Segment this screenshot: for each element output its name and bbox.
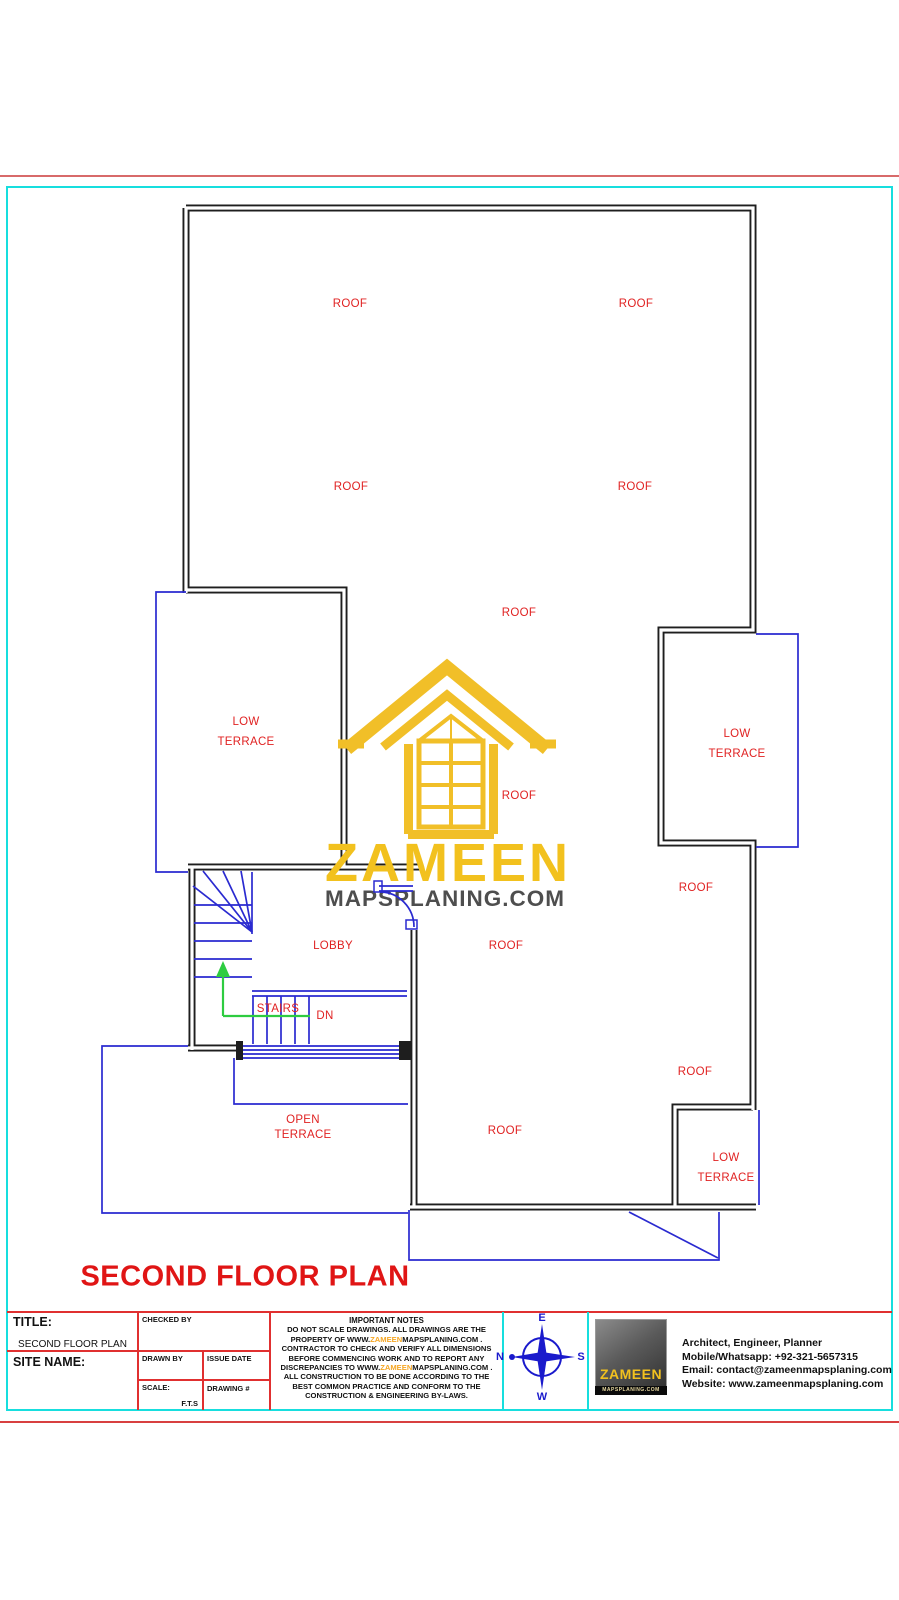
note-line: BEFORE COMMENCING WORK AND TO REPORT ANY (272, 1354, 501, 1363)
note-line: BEST COMMON PRACTICE AND CONFORM TO THE (272, 1382, 501, 1391)
roof-label-9: ROOF (678, 1065, 712, 1079)
issue-date-label: ISSUE DATE (207, 1354, 251, 1363)
site-name-label: SITE NAME: (13, 1355, 85, 1369)
contact-mobile: Mobile/Whatsapp: +92-321-5657315 (682, 1351, 892, 1365)
company-contact-info: Architect, Engineer, Planner Mobile/What… (682, 1337, 892, 1391)
scale-label: SCALE: (142, 1383, 170, 1392)
watermark-brand: ZAMEEN (325, 833, 571, 893)
important-notes: IMPORTANT NOTES DO NOT SCALE DRAWINGS. A… (272, 1316, 501, 1401)
roof-label-6: ROOF (502, 789, 536, 803)
drawing-number-label: DRAWING # (207, 1384, 250, 1393)
note-line: PROPERTY OF WWW.ZAMEENMAPSPLANING.COM . (272, 1335, 501, 1344)
note-line: CONTRACTOR TO CHECK AND VERIFY ALL DIMEN… (272, 1344, 501, 1353)
roof-label-7: ROOF (679, 881, 713, 895)
notes-body: DO NOT SCALE DRAWINGS. ALL DRAWINGS ARE … (272, 1325, 501, 1400)
title-label: TITLE: (13, 1315, 52, 1329)
contact-email: Email: contact@zameenmapsplaning.com (682, 1364, 892, 1378)
contact-website: Website: www.zameenmapsplaning.com (682, 1378, 892, 1392)
roof-label-10: ROOF (488, 1124, 522, 1138)
low-terrace-left-label: LOW TERRACE (217, 712, 274, 752)
note-line: ALL CONSTRUCTION TO BE DONE ACCORDING TO… (272, 1372, 501, 1381)
drawn-by-label: DRAWN BY (142, 1354, 183, 1363)
company-logo-brand: ZAMEEN (595, 1366, 667, 1382)
checked-by-label: CHECKED BY (142, 1315, 192, 1324)
roof-label-3: ROOF (334, 480, 368, 494)
title-value: SECOND FLOOR PLAN (7, 1339, 138, 1350)
compass-north-label: N (496, 1351, 504, 1363)
note-line: CONSTRUCTION & ENGINEERING BY-LAWS. (272, 1391, 501, 1400)
note-line: DISCREPANCIES TO WWW.ZAMEENMAPSPLANING.C… (272, 1363, 501, 1372)
roof-label-2: ROOF (619, 297, 653, 311)
low-terrace-right-label: LOW TERRACE (708, 724, 765, 764)
compass-east-label: E (538, 1312, 545, 1324)
contact-role: Architect, Engineer, Planner (682, 1337, 892, 1351)
watermark-house-icon (338, 667, 556, 839)
roof-label-8: ROOF (489, 939, 523, 953)
lobby-label: LOBBY (313, 939, 353, 953)
dn-label: DN (316, 1009, 333, 1023)
drawing-sheet: ZAMEEN MAPSPLANING.COM (0, 0, 899, 1600)
watermark-domain: MAPSPLANING.COM (325, 886, 565, 911)
company-logo-domain-strip: MAPSPLANING.COM (595, 1386, 667, 1395)
low-terrace-bottom-label: LOW TERRACE (697, 1148, 754, 1188)
stairs-label: STAIRS (257, 1002, 299, 1016)
compass-west-label: W (537, 1391, 547, 1403)
company-logo-domain: MAPSPLANING.COM (595, 1386, 667, 1395)
stair-strip-cap-right (399, 1041, 411, 1060)
stair-strip-cap-left (236, 1041, 243, 1060)
company-logo (595, 1319, 667, 1395)
open-terrace-label: OPEN TERRACE (274, 1113, 331, 1143)
notes-title: IMPORTANT NOTES (272, 1316, 501, 1325)
compass-rose (509, 1324, 575, 1390)
drawing-title: SECOND FLOOR PLAN (80, 1261, 409, 1294)
compass-south-label: S (577, 1351, 584, 1363)
roof-label-4: ROOF (618, 480, 652, 494)
roof-label-5: ROOF (502, 606, 536, 620)
roof-label-1: ROOF (333, 297, 367, 311)
note-line: DO NOT SCALE DRAWINGS. ALL DRAWINGS ARE … (272, 1325, 501, 1334)
scale-value: F.T.S (138, 1399, 198, 1408)
